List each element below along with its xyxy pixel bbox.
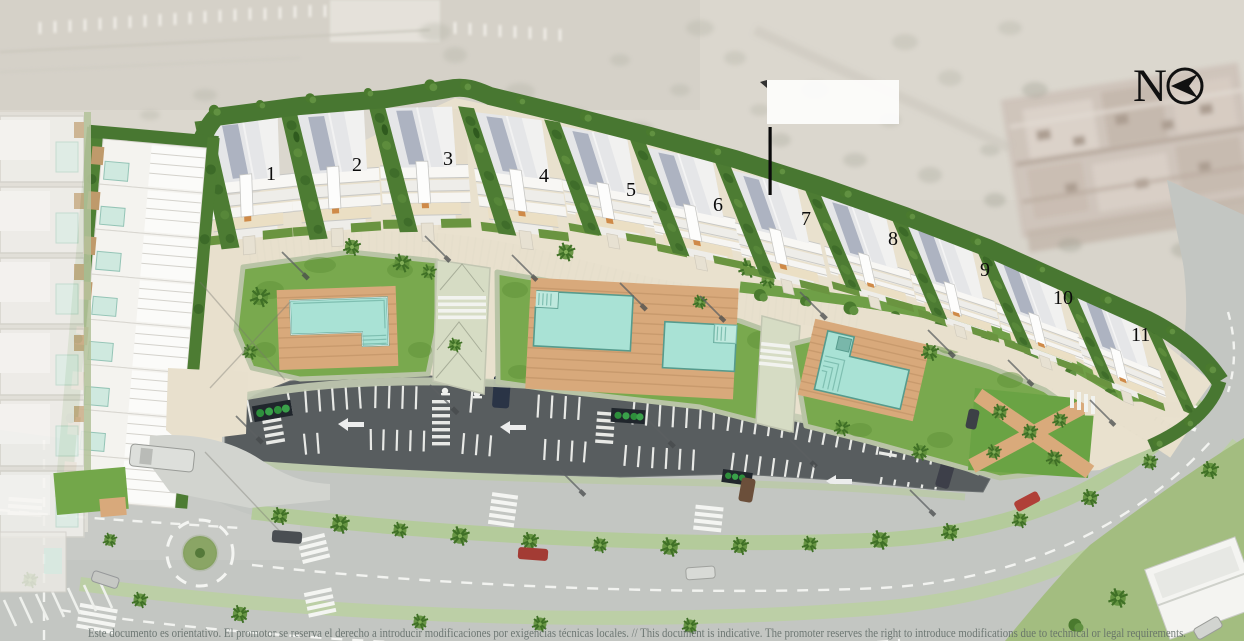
svg-text:11: 11 <box>1131 324 1150 346</box>
svg-text:2: 2 <box>352 154 362 176</box>
svg-text:4: 4 <box>539 165 549 187</box>
svg-text:10: 10 <box>1053 287 1073 309</box>
svg-text:Este documento es orientativo.: Este documento es orientativo. El promot… <box>88 626 1186 640</box>
svg-text:5: 5 <box>626 179 636 201</box>
svg-text:8: 8 <box>888 228 898 250</box>
svg-text:7: 7 <box>801 208 811 230</box>
svg-text:9: 9 <box>980 259 990 281</box>
svg-text:1: 1 <box>266 163 276 185</box>
svg-text:N: N <box>1133 60 1167 112</box>
svg-text:6: 6 <box>713 194 723 216</box>
svg-text:3: 3 <box>443 148 453 170</box>
